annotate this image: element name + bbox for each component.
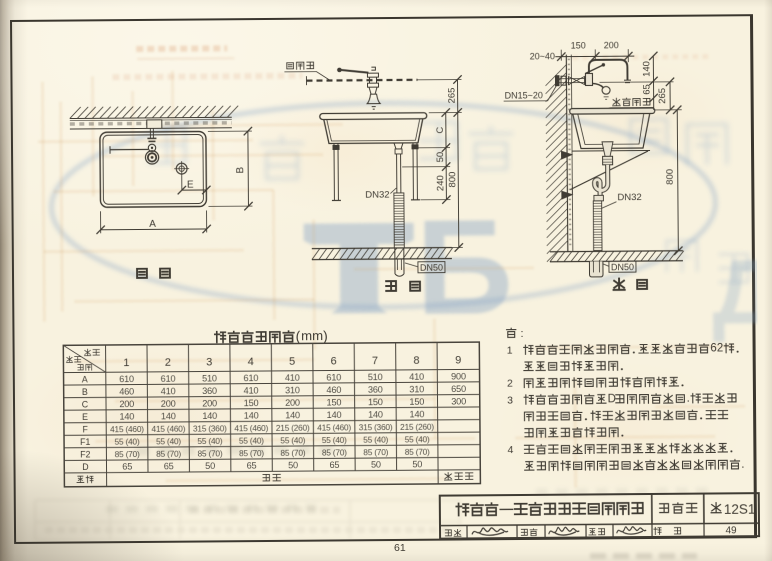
svg-text:460: 460 <box>119 386 134 396</box>
svg-text:415 (460): 415 (460) <box>317 422 351 432</box>
svg-text:140: 140 <box>327 410 342 420</box>
svg-text:DN15~20: DN15~20 <box>505 90 543 100</box>
svg-text:DN50: DN50 <box>611 262 634 272</box>
svg-text:55 (40): 55 (40) <box>239 436 264 446</box>
svg-text:85 (70): 85 (70) <box>280 448 305 458</box>
svg-text:A: A <box>82 374 88 384</box>
svg-text:65: 65 <box>164 461 174 471</box>
svg-text:65: 65 <box>329 460 339 470</box>
svg-text:50: 50 <box>435 152 446 163</box>
svg-text:410: 410 <box>161 386 176 396</box>
svg-text:55 (40): 55 (40) <box>197 436 222 446</box>
svg-text::: : <box>520 328 523 340</box>
svg-text:.: . <box>741 459 744 471</box>
svg-text:65: 65 <box>642 84 653 95</box>
svg-text:800: 800 <box>447 172 458 188</box>
svg-text:610: 610 <box>326 372 341 382</box>
svg-text:1: 1 <box>507 345 513 357</box>
svg-text:200: 200 <box>161 399 176 409</box>
svg-text:85 (70): 85 (70) <box>405 447 430 457</box>
svg-text:50: 50 <box>412 459 422 469</box>
svg-text:8: 8 <box>413 355 419 367</box>
svg-text:410: 410 <box>244 385 259 395</box>
svg-text:360: 360 <box>368 384 383 394</box>
svg-text:150: 150 <box>327 397 342 407</box>
svg-text:140: 140 <box>368 410 383 420</box>
svg-text:B: B <box>235 166 246 173</box>
svg-text:F2: F2 <box>80 449 90 459</box>
svg-text:610: 610 <box>243 373 258 383</box>
svg-text:610: 610 <box>161 374 176 384</box>
svg-text:85 (70): 85 (70) <box>156 449 181 459</box>
svg-text:510: 510 <box>202 373 217 383</box>
svg-text:415 (460): 415 (460) <box>110 424 144 434</box>
svg-text:140: 140 <box>285 410 300 420</box>
svg-text:F: F <box>82 424 88 434</box>
svg-text:610: 610 <box>119 374 134 384</box>
svg-text:2: 2 <box>507 378 513 390</box>
svg-text:): ) <box>323 328 328 344</box>
svg-text:150: 150 <box>244 398 259 408</box>
svg-text:(: ( <box>296 328 301 344</box>
svg-text:310: 310 <box>409 384 424 394</box>
svg-text:50: 50 <box>288 460 298 470</box>
svg-text:85 (70): 85 (70) <box>322 447 347 457</box>
svg-text:4: 4 <box>248 356 254 368</box>
svg-text:510: 510 <box>368 372 383 382</box>
svg-text:310: 310 <box>285 385 300 395</box>
svg-text:265: 265 <box>447 88 458 104</box>
svg-text:55 (40): 55 (40) <box>363 435 388 445</box>
svg-text:1: 1 <box>123 357 129 369</box>
svg-text:4: 4 <box>507 444 513 456</box>
svg-text:140: 140 <box>244 411 259 421</box>
svg-text:140: 140 <box>410 409 425 419</box>
svg-text:55 (40): 55 (40) <box>405 434 430 444</box>
svg-text:200: 200 <box>604 40 619 50</box>
svg-text:mm: mm <box>301 328 323 343</box>
svg-text:50: 50 <box>371 460 381 470</box>
svg-text:140: 140 <box>119 411 134 421</box>
svg-text:300: 300 <box>451 396 466 406</box>
svg-text:C: C <box>82 399 89 409</box>
svg-text:200: 200 <box>119 399 134 409</box>
svg-text:150: 150 <box>368 397 383 407</box>
svg-text:85 (70): 85 (70) <box>239 448 264 458</box>
svg-text:410: 410 <box>409 372 424 382</box>
svg-text:360: 360 <box>202 386 217 396</box>
svg-text:49: 49 <box>725 525 737 536</box>
svg-text:65: 65 <box>247 461 257 471</box>
svg-text:.: . <box>687 393 690 405</box>
svg-text:800: 800 <box>665 169 676 185</box>
svg-text:DN32: DN32 <box>617 192 641 203</box>
svg-text:140: 140 <box>641 61 652 77</box>
svg-text:85 (70): 85 (70) <box>115 449 140 459</box>
svg-text:140: 140 <box>161 411 176 421</box>
svg-text:3: 3 <box>206 356 212 368</box>
svg-text:315 (360): 315 (360) <box>359 422 393 432</box>
svg-text:415 (460): 415 (460) <box>151 424 185 434</box>
svg-text:200: 200 <box>285 398 300 408</box>
svg-text:12S1: 12S1 <box>724 502 756 517</box>
svg-text:55 (40): 55 (40) <box>115 437 140 447</box>
svg-text:20~40: 20~40 <box>530 51 555 61</box>
svg-text:B: B <box>82 387 88 397</box>
svg-text:62: 62 <box>710 343 723 355</box>
svg-text:55 (40): 55 (40) <box>280 435 305 445</box>
svg-text:D: D <box>82 462 88 472</box>
svg-text:55 (40): 55 (40) <box>322 435 347 445</box>
svg-text:410: 410 <box>285 373 300 383</box>
svg-text:140: 140 <box>202 411 217 421</box>
svg-text:3: 3 <box>507 394 513 406</box>
svg-text:240: 240 <box>435 175 446 191</box>
svg-text:315 (360): 315 (360) <box>193 423 227 433</box>
svg-text:150: 150 <box>409 397 424 407</box>
svg-text:E: E <box>82 412 88 422</box>
svg-text:F1: F1 <box>80 437 90 447</box>
svg-text:215 (260): 215 (260) <box>400 422 434 432</box>
svg-text:900: 900 <box>451 371 466 381</box>
svg-text:A: A <box>149 219 156 230</box>
svg-text:460: 460 <box>326 385 341 395</box>
svg-text:65: 65 <box>122 462 132 472</box>
svg-text:6: 6 <box>331 355 337 367</box>
svg-text:5: 5 <box>289 356 295 368</box>
svg-text:85 (70): 85 (70) <box>363 447 388 457</box>
svg-text:DN32: DN32 <box>365 190 389 201</box>
svg-text:2: 2 <box>165 357 171 369</box>
svg-text:415 (460): 415 (460) <box>234 423 268 433</box>
svg-text:E: E <box>187 180 194 191</box>
svg-text:D: D <box>608 393 616 405</box>
svg-text:50: 50 <box>205 461 215 471</box>
svg-text:215 (260): 215 (260) <box>276 423 310 433</box>
svg-text:7: 7 <box>372 355 378 367</box>
svg-text:9: 9 <box>455 354 461 366</box>
svg-text:150: 150 <box>571 40 586 50</box>
svg-text:C: C <box>435 127 446 134</box>
svg-text:265: 265 <box>657 88 668 104</box>
svg-text:85 (70): 85 (70) <box>198 448 223 458</box>
svg-text:55 (40): 55 (40) <box>156 436 181 446</box>
svg-text:200: 200 <box>202 398 217 408</box>
svg-text:650: 650 <box>451 384 466 394</box>
svg-text:DN50: DN50 <box>420 263 443 273</box>
